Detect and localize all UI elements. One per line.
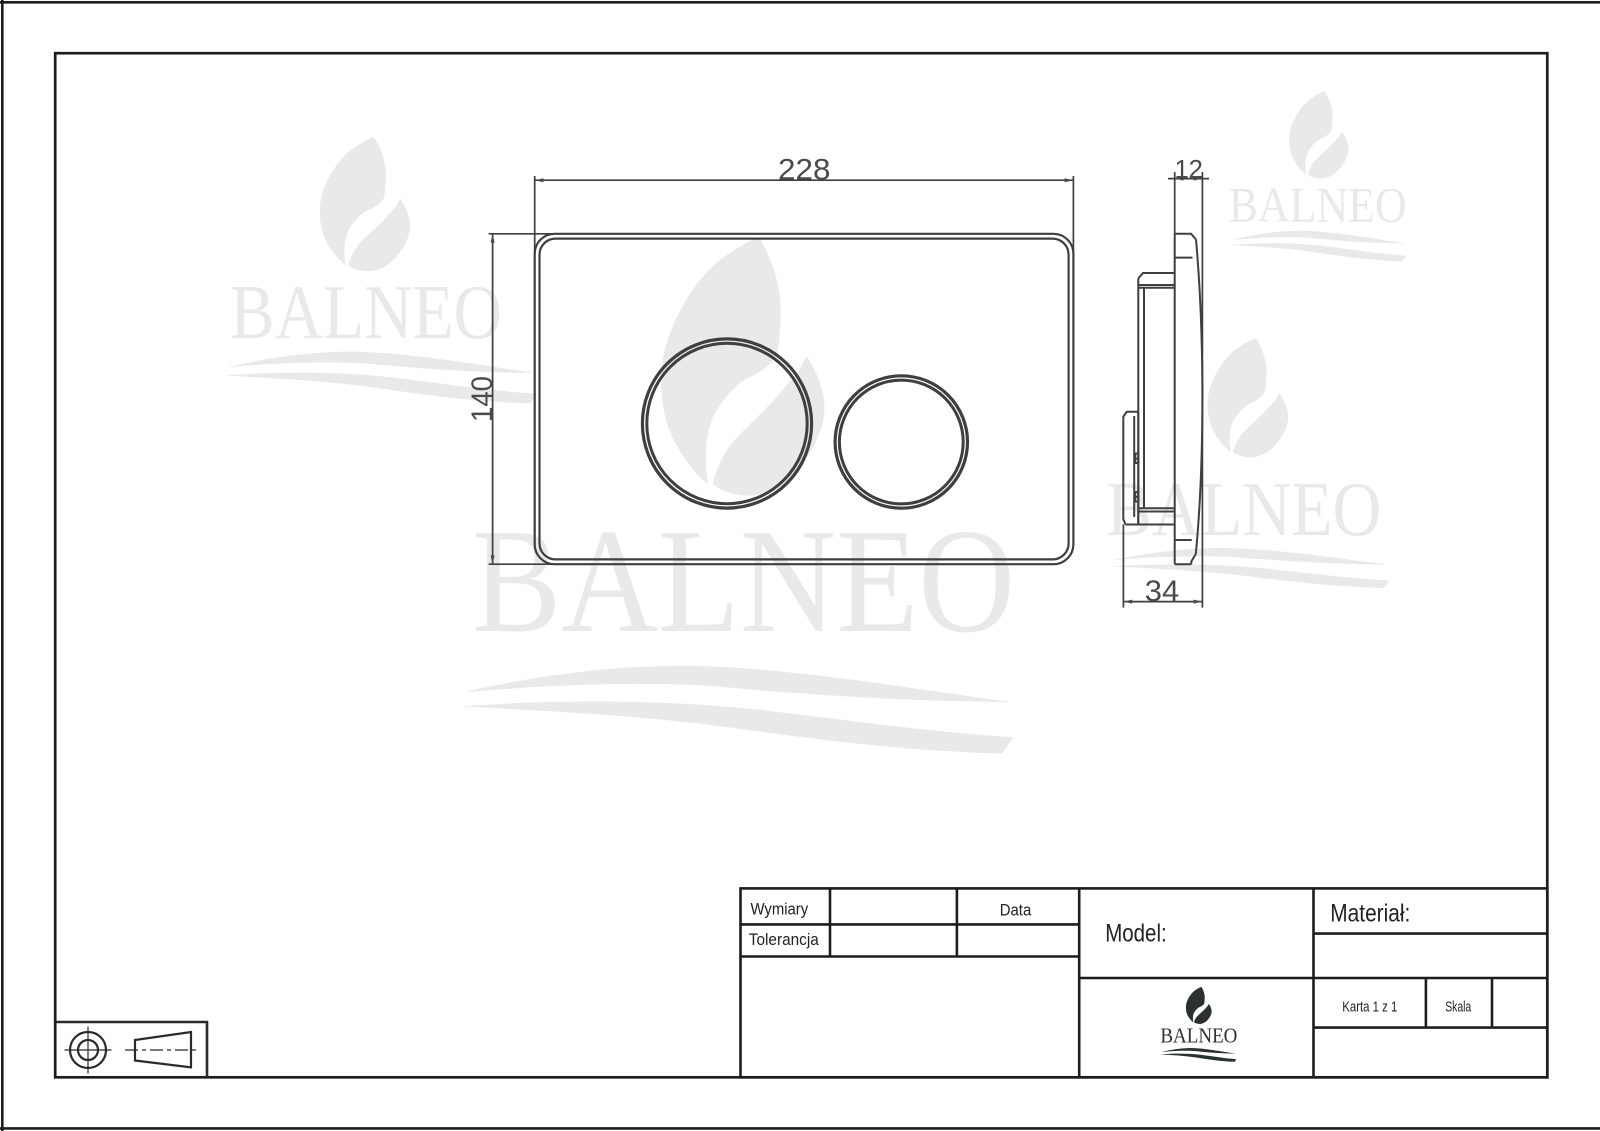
svg-text:12: 12: [1174, 154, 1203, 184]
svg-text:BALNEO: BALNEO: [230, 269, 502, 355]
svg-text:Model:: Model:: [1105, 919, 1167, 947]
svg-text:Karta 1 z 1: Karta 1 z 1: [1342, 999, 1397, 1016]
svg-text:BALNEO: BALNEO: [472, 499, 1015, 664]
svg-text:Data: Data: [1000, 901, 1032, 920]
svg-text:Skala: Skala: [1445, 999, 1471, 1016]
svg-text:BALNEO: BALNEO: [1229, 177, 1407, 233]
svg-text:140: 140: [466, 376, 499, 422]
svg-text:Wymiary: Wymiary: [751, 899, 809, 918]
svg-text:34: 34: [1145, 575, 1180, 608]
svg-text:Tolerancja: Tolerancja: [749, 930, 819, 949]
svg-text:Materiał:: Materiał:: [1330, 899, 1410, 927]
svg-text:228: 228: [778, 154, 831, 187]
svg-text:BALNEO: BALNEO: [1160, 1026, 1237, 1048]
